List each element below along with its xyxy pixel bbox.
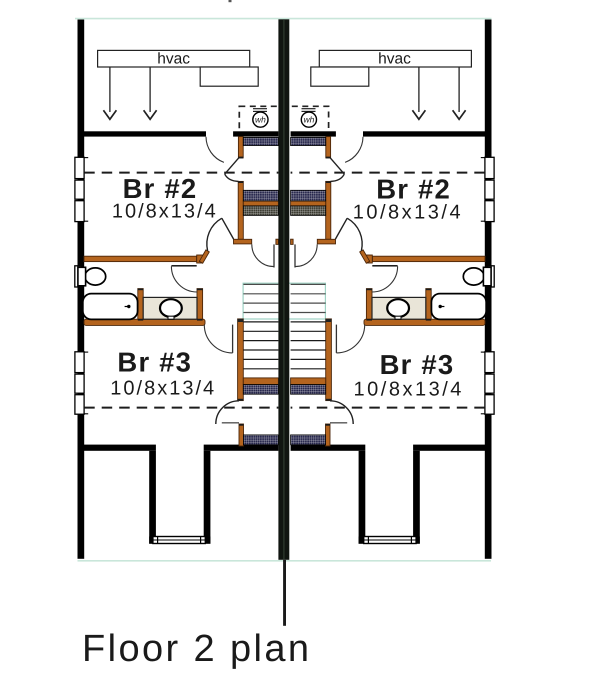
svg-text:Br #2: Br #2 [376,174,451,205]
svg-text:Br #3: Br #3 [380,349,455,380]
svg-text:hvac: hvac [378,51,411,68]
svg-text:10/8x13/4: 10/8x13/4 [354,379,464,401]
svg-text:hvac: hvac [157,51,190,68]
svg-text:10/8x13/4: 10/8x13/4 [110,377,216,399]
svg-text:10/8x13/4: 10/8x13/4 [353,202,463,224]
svg-text:wh: wh [255,115,266,125]
svg-text:wh: wh [303,115,314,125]
svg-text:10/8x13/4: 10/8x13/4 [112,201,218,223]
svg-text:Br #2: Br #2 [123,173,198,204]
svg-text:Floor 2 plan: Floor 2 plan [82,628,311,670]
svg-text:Br #3: Br #3 [117,347,192,378]
